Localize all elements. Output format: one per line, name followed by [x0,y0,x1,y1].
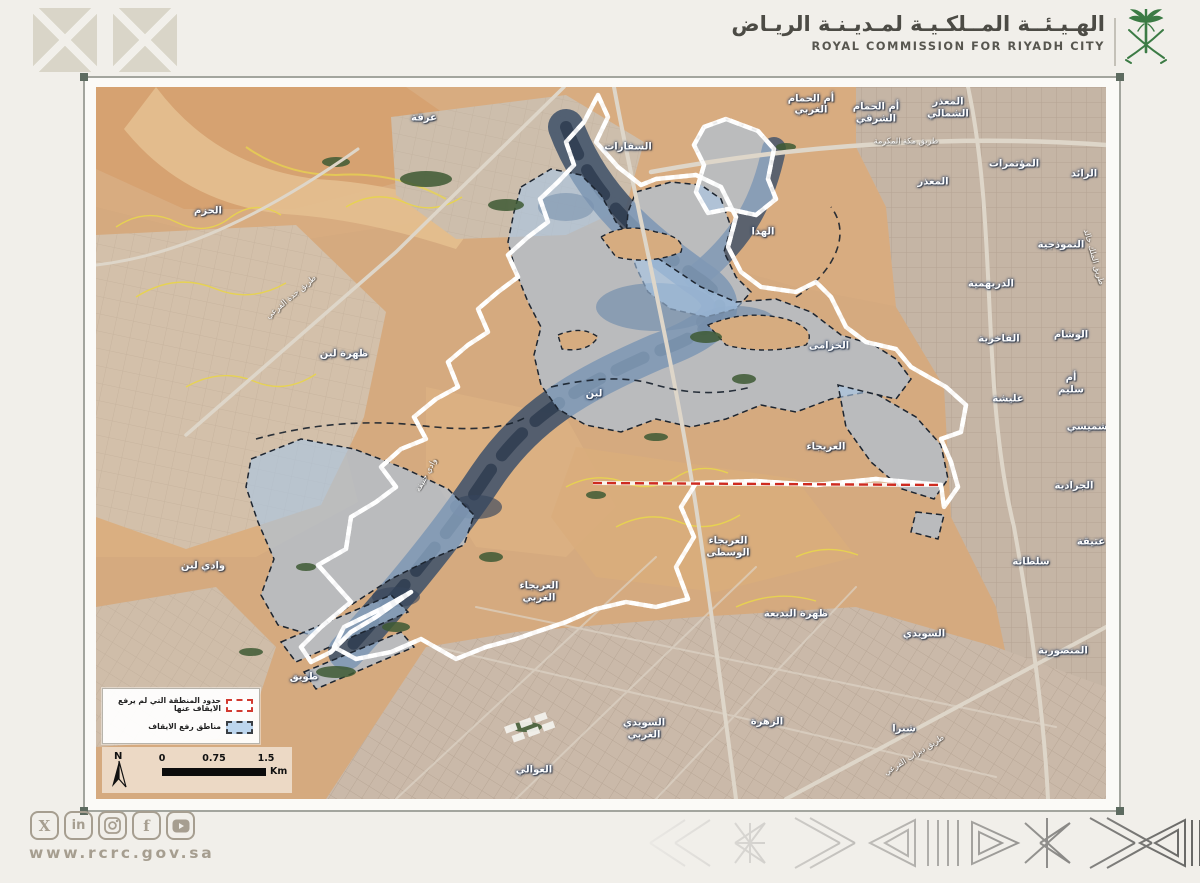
brand-divider [1114,18,1116,66]
scale-tick: 0 [159,753,166,764]
road-label: طريق مكة المكرمة [874,136,938,145]
facebook-icon[interactable]: f [132,811,161,840]
district-label: السفارات [604,141,652,153]
district-label: ظهرة البديعة [764,608,828,620]
youtube-icon[interactable] [166,811,195,840]
legend-label: حدود المنطقة التي لم يرفع الايقاف عنها [109,697,221,712]
x-pattern-tile [113,8,177,72]
district-label: الشميسي [1067,421,1106,433]
legend-label: مناطق رفع الايقاف [148,723,221,731]
district-label: الوشام [1054,329,1088,341]
north-and-scale: N 0 0.75 1.5 Km [102,747,292,793]
district-label: طويق [290,671,318,683]
district-label: ظهرة لبن [320,348,368,360]
road-label: طريق جدة الفرعي [264,273,318,320]
road-label: طريق الملك خالد [1082,228,1106,286]
district-label: الجرادية [1055,480,1094,492]
district-label: أم سليم [1054,373,1089,396]
satellite-map: عرقةالسفاراتأم الحمام الغربيأم الحمام ال… [96,87,1106,799]
road-label: طريق ديراب الفرعي [882,733,946,778]
district-label: عليشة [992,393,1023,405]
social-icons: X in f [30,811,195,840]
x-twitter-icon[interactable]: X [30,811,59,840]
district-label: المؤتمرات [989,158,1039,170]
poster-page: الهـيـئــة المــلكـيـة لمـديـنـة الريـاض… [0,0,1200,883]
district-label: الزهرة [751,716,783,728]
district-label: المنصورية [1038,645,1088,657]
scale-bar-line [162,768,266,776]
map-frame: عرقةالسفاراتأم الحمام الغربيأم الحمام ال… [83,76,1121,812]
instagram-icon[interactable] [98,811,127,840]
district-label: العوالي [516,764,552,776]
x-pattern-tile [33,8,97,72]
frame-corner [80,73,88,81]
brand-title-english: ROYAL COMMISSION FOR RIYADH CITY [731,40,1105,53]
road-label: وادي حنيفة [413,457,438,494]
north-letter: N [114,751,122,762]
district-label: الرائد [1071,168,1097,180]
linkedin-icon[interactable]: in [64,811,93,840]
district-label: الخزامى [809,340,849,352]
scale-bar: 0 0.75 1.5 Km [154,753,284,787]
district-label: السويدي الغربي [623,718,665,741]
district-label: الدريهمية [968,278,1014,290]
legend-row-boundary: حدود المنطقة التي لم يرفع الايقاف عنها [109,694,253,716]
district-label: الحزم [194,205,222,217]
north-arrow-icon: N [108,749,130,791]
district-label: سلطانة [1012,556,1049,568]
district-label: الفاخرية [978,333,1019,345]
brand-title-arabic: الهـيـئــة المــلكـيـة لمـديـنـة الريـاض [731,12,1105,37]
district-label: المعذر [917,176,948,188]
district-label: العريجاء الغربي [520,581,559,604]
district-label: المعذر الشمالي [927,97,969,120]
saudi-palm-swords-icon [1122,8,1170,72]
district-label: وادي لبن [181,560,225,572]
district-label: أم الحمام الشرقي [853,102,899,125]
red-dashed-swatch [226,699,253,712]
district-label: أم الحمام الغربي [788,93,834,116]
scale-unit: Km [270,766,287,777]
district-label: عرقة [411,112,437,124]
scale-tick: 0.75 [202,753,225,764]
district-label: العريجاء الوسطى [706,536,749,559]
district-label: الهدا [752,226,775,238]
map-legend: حدود المنطقة التي لم يرفع الايقاف عنها م… [102,688,260,744]
district-label: شبرا [892,723,916,735]
district-label: لبن [586,388,603,400]
blue-fill-swatch [226,721,253,734]
brand-block: الهـيـئــة المــلكـيـة لمـديـنـة الريـاض… [731,12,1105,53]
district-label: السويدي [903,628,945,640]
scale-tick: 1.5 [258,753,275,764]
sadu-pattern [640,812,1200,874]
district-label: عتيقة [1077,536,1105,548]
district-label: النموذجية [1038,239,1085,251]
district-label: العريجاء [807,441,846,453]
legend-row-lifted-areas: مناطق رفع الايقاف [109,716,253,738]
website-link[interactable]: www.rcrc.gov.sa [29,844,215,862]
frame-corner [1116,73,1124,81]
